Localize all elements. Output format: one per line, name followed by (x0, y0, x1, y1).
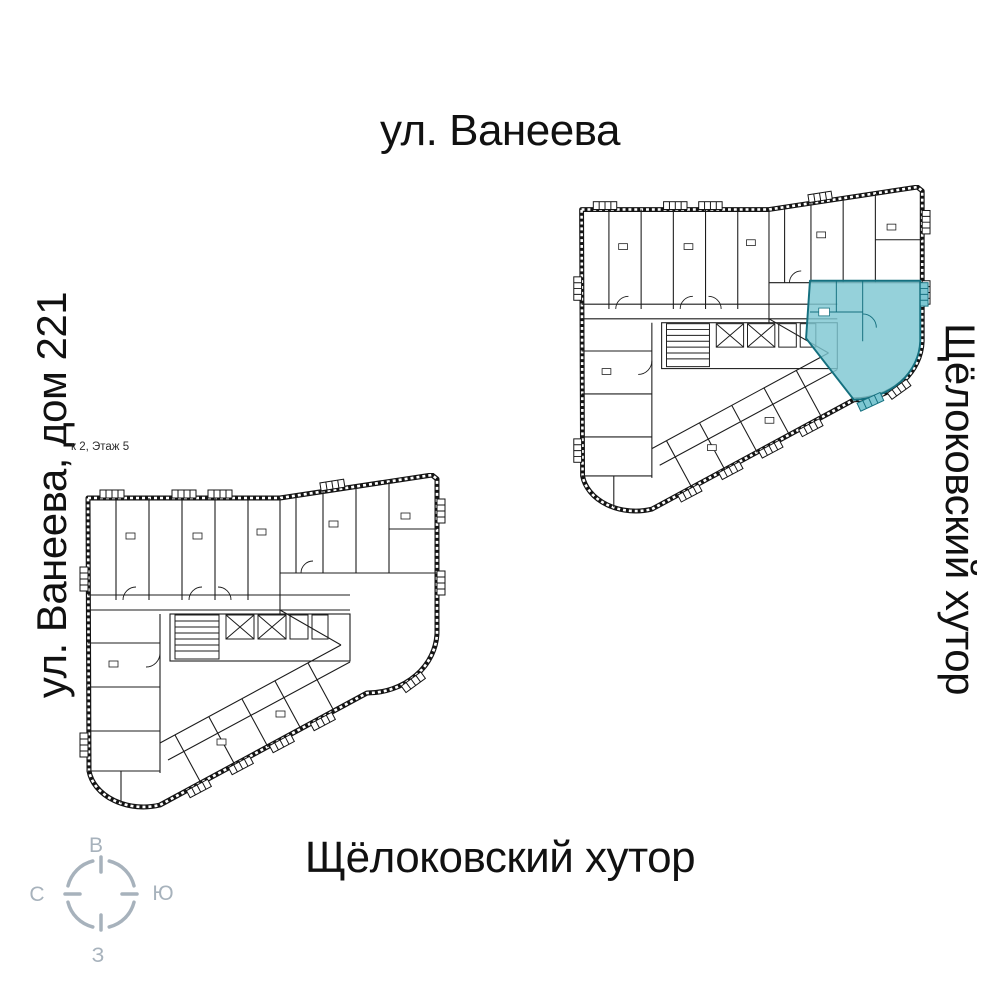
site-plan-page: ул. Ванеева Щёлоковский хутор ул. Ванеев… (0, 0, 1000, 1000)
compass-ring (65, 857, 137, 930)
district-label-bottom: Щёлоковский хутор (305, 833, 695, 883)
highlighted-apartment-badge (819, 308, 830, 316)
building-floor-note: к 2, Этаж 5 (71, 441, 129, 453)
floor-plan-small (565, 185, 931, 519)
street-label-left: ул. Ванеева, дом 221 (28, 292, 76, 698)
district-label-right: Щёлоковский хутор (936, 323, 984, 695)
compass-label-north: С (29, 883, 44, 906)
floor-plan-large (71, 473, 446, 815)
building-footprint (80, 475, 445, 807)
compass-label-east: В (89, 834, 103, 857)
compass-label-south: Ю (152, 882, 173, 905)
street-label-top: ул. Ванеева (380, 106, 620, 156)
compass-label-west: З (92, 944, 105, 967)
highlighted-apartment-loggia (920, 283, 928, 306)
compass-rose: В С Ю З (20, 822, 176, 972)
